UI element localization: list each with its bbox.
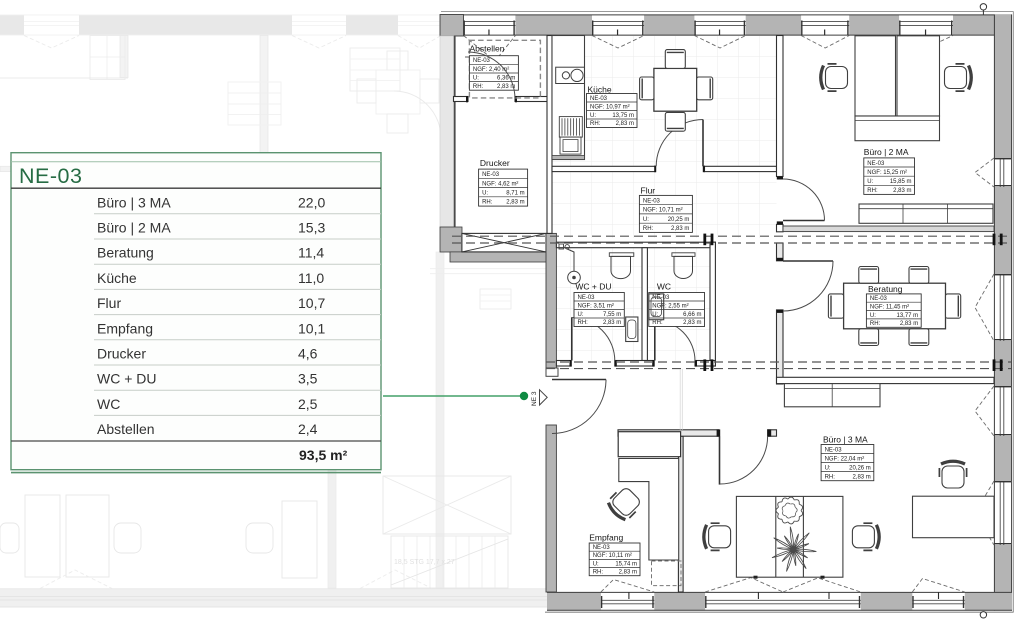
svg-text:2,83 m: 2,83 m — [619, 569, 637, 575]
svg-text:Flur: Flur — [641, 186, 656, 196]
svg-text:2,83 m: 2,83 m — [616, 121, 634, 127]
svg-text:Flur: Flur — [97, 295, 121, 311]
svg-text:NE-03: NE-03 — [825, 447, 843, 453]
svg-text:6,66 m: 6,66 m — [683, 312, 701, 318]
svg-text:3,5: 3,5 — [298, 371, 318, 387]
svg-text:NE-03: NE-03 — [473, 58, 491, 64]
svg-text:Empfang: Empfang — [589, 533, 623, 543]
svg-text:NGF: 10,97 m²: NGF: 10,97 m² — [590, 104, 630, 110]
svg-text:2,83 m: 2,83 m — [671, 226, 689, 232]
svg-text:2,83 m: 2,83 m — [683, 320, 701, 326]
svg-text:11,4: 11,4 — [298, 245, 324, 261]
svg-text:U:: U: — [578, 312, 584, 318]
svg-text:4,6: 4,6 — [298, 346, 318, 362]
svg-text:NGF: 4,62 m²: NGF: 4,62 m² — [482, 181, 518, 187]
svg-text:13,77 m: 13,77 m — [897, 313, 919, 319]
svg-text:U:: U: — [870, 313, 876, 319]
svg-text:Drucker: Drucker — [480, 158, 510, 168]
svg-text:8,71 m: 8,71 m — [506, 191, 524, 197]
svg-text:NGF: 22,04 m²: NGF: 22,04 m² — [825, 456, 865, 462]
svg-text:RH:: RH: — [482, 200, 493, 206]
svg-text:RH:: RH: — [578, 320, 589, 326]
svg-text:U:: U: — [825, 465, 831, 471]
svg-text:RH:: RH: — [593, 569, 604, 575]
svg-text:NE-03: NE-03 — [482, 172, 500, 178]
svg-text:Büro | 3 MA: Büro | 3 MA — [823, 434, 868, 444]
svg-text:NE-03: NE-03 — [590, 96, 608, 102]
svg-text:2,83 m: 2,83 m — [603, 320, 621, 326]
svg-text:Abstellen: Abstellen — [97, 421, 155, 437]
svg-text:U:: U: — [473, 75, 479, 81]
svg-text:18,5 STG 17,7 x 27: 18,5 STG 17,7 x 27 — [394, 559, 455, 566]
svg-text:NE-03: NE-03 — [593, 545, 611, 551]
svg-text:Beratung: Beratung — [868, 284, 903, 294]
svg-text:15,74 m: 15,74 m — [615, 561, 637, 567]
svg-text:NE-03: NE-03 — [870, 296, 888, 302]
svg-text:Küche: Küche — [588, 85, 612, 95]
svg-text:U:: U: — [593, 561, 599, 567]
svg-text:NGF: 3,51 m²: NGF: 3,51 m² — [578, 303, 614, 309]
svg-text:10,7: 10,7 — [298, 295, 325, 311]
svg-text:2,5: 2,5 — [298, 396, 318, 412]
svg-text:22,0: 22,0 — [298, 194, 325, 210]
svg-text:NGF: 10,11 m²: NGF: 10,11 m² — [593, 553, 632, 559]
svg-text:WC: WC — [97, 396, 120, 412]
svg-text:NE-03: NE-03 — [867, 161, 885, 167]
svg-text:Büro | 2 MA: Büro | 2 MA — [864, 147, 909, 157]
svg-text:U:: U: — [482, 191, 488, 197]
svg-text:Küche: Küche — [97, 270, 137, 286]
svg-text:Empfang: Empfang — [97, 320, 153, 336]
svg-text:NGF: 2,55 m²: NGF: 2,55 m² — [652, 303, 688, 309]
svg-text:Beratung: Beratung — [97, 245, 154, 261]
svg-text:20,26 m: 20,26 m — [849, 465, 871, 471]
svg-text:NE-03: NE-03 — [578, 295, 596, 301]
svg-text:WC + DU: WC + DU — [575, 281, 611, 291]
svg-text:NGF: 15,25 m²: NGF: 15,25 m² — [867, 170, 907, 176]
svg-text:RH:: RH: — [825, 474, 836, 480]
svg-text:RH:: RH: — [473, 84, 484, 90]
svg-text:93,5 m²: 93,5 m² — [299, 447, 348, 463]
svg-text:10,1: 10,1 — [298, 320, 325, 336]
svg-text:Büro | 3 MA: Büro | 3 MA — [97, 194, 171, 210]
svg-text:WC + DU: WC + DU — [97, 371, 157, 387]
svg-text:7,55 m: 7,55 m — [603, 312, 621, 318]
svg-text:WC: WC — [657, 281, 671, 291]
svg-text:NGF: 11,45 m²: NGF: 11,45 m² — [870, 304, 909, 310]
svg-text:2,4: 2,4 — [298, 421, 318, 437]
svg-text:RH:: RH: — [867, 188, 878, 194]
svg-text:U:: U: — [590, 113, 596, 119]
svg-text:6,36 m: 6,36 m — [497, 75, 515, 81]
svg-text:2,83 m: 2,83 m — [506, 200, 524, 206]
svg-text:Drucker: Drucker — [97, 346, 146, 362]
svg-text:NGF: 10,71 m²: NGF: 10,71 m² — [643, 208, 683, 214]
svg-text:15,3: 15,3 — [298, 220, 325, 236]
svg-text:RH:: RH: — [870, 321, 881, 327]
svg-text:RH:: RH: — [590, 121, 601, 127]
svg-text:2,83 m: 2,83 m — [893, 188, 911, 194]
svg-text:15,85 m: 15,85 m — [890, 179, 912, 185]
svg-text:NE 3: NE 3 — [531, 391, 538, 406]
svg-text:NE-03: NE-03 — [19, 164, 82, 188]
svg-text:2,83 m: 2,83 m — [900, 321, 918, 327]
svg-text:2,83 m: 2,83 m — [852, 474, 870, 480]
svg-text:U:: U: — [867, 179, 873, 185]
svg-text:NGF: 2,40 m²: NGF: 2,40 m² — [473, 67, 509, 73]
svg-text:13,75 m: 13,75 m — [612, 113, 634, 119]
svg-text:RH:: RH: — [643, 226, 654, 232]
svg-text:Büro | 2 MA: Büro | 2 MA — [97, 220, 171, 236]
svg-text:NE-03: NE-03 — [643, 199, 661, 205]
svg-text:RH:: RH: — [652, 320, 663, 326]
svg-text:20,25 m: 20,25 m — [668, 217, 690, 223]
svg-text:U:: U: — [643, 217, 649, 223]
svg-text:11,0: 11,0 — [298, 270, 324, 286]
